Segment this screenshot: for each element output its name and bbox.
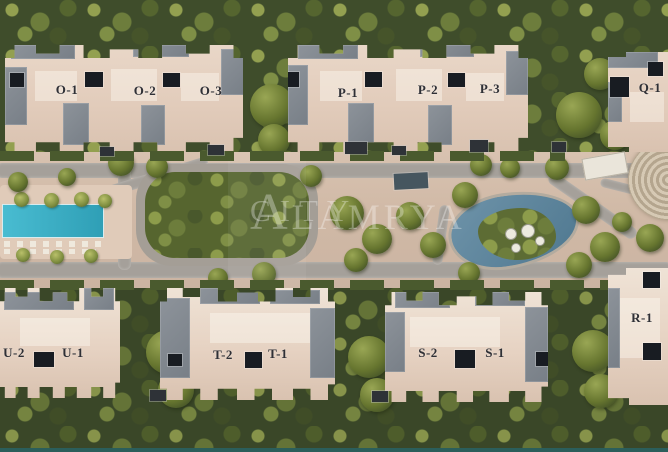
tree [572, 196, 600, 224]
cabana-umbrella [521, 224, 535, 238]
building-label-q1: Q-1 [639, 80, 661, 96]
building-cluster-s: S-2 S-1 [385, 292, 548, 402]
building-label-p3: P-3 [480, 81, 500, 97]
tree [8, 172, 28, 192]
tree [396, 202, 424, 230]
cabana-umbrella [511, 243, 521, 253]
tree [636, 224, 664, 252]
roof-highlight [210, 313, 310, 343]
building-cluster-t: T-2 T-1 [160, 288, 335, 400]
roof-section-gray [63, 103, 89, 145]
roof-section-gray [608, 288, 620, 368]
rooftop-skylight [643, 272, 660, 288]
building-label-t2: T-2 [213, 347, 233, 363]
rooftop-skylight [448, 73, 465, 87]
entrance-canopy [552, 142, 566, 152]
roof-highlight [410, 317, 500, 347]
building-label-u2: U-2 [3, 345, 25, 361]
tree [572, 330, 614, 372]
palm-tree [84, 249, 98, 263]
cabana-umbrella [505, 228, 517, 240]
roof-highlight [20, 318, 90, 346]
palm-tree [16, 248, 30, 262]
masterplan-aerial-view: O-1 O-2 O-3 P-1 P-2 P-3 Q-1 U-2 U [0, 0, 668, 452]
building-label-s2: S-2 [418, 345, 438, 361]
roof-section-gray [4, 292, 74, 310]
rooftop-skylight [643, 343, 661, 360]
cabana-umbrella [535, 236, 545, 246]
building-label-r1: R-1 [631, 310, 653, 326]
sun-loungers [4, 241, 104, 247]
bottom-edge-line [0, 448, 668, 452]
roof-section-gray [428, 105, 452, 145]
building-cluster-p: P-1 P-2 P-3 [288, 45, 528, 153]
swimming-pool [2, 204, 104, 238]
rooftop-skylight [365, 72, 382, 87]
tree [362, 224, 392, 254]
rooftop-skylight [85, 72, 103, 87]
image-seam [228, 152, 306, 290]
building-label-t1: T-1 [268, 346, 288, 362]
roof-section-gray [385, 312, 405, 372]
tree [452, 182, 478, 208]
tree [500, 158, 520, 178]
tree [420, 232, 446, 258]
tree [556, 92, 602, 138]
roof-section-gray [348, 103, 374, 145]
tree [344, 248, 368, 272]
building-cluster-o: O-1 O-2 O-3 [5, 45, 243, 153]
tree [566, 252, 592, 278]
tree [58, 168, 76, 186]
rooftop-skylight [34, 352, 54, 367]
roof-highlight [630, 92, 664, 122]
entrance-canopy [392, 146, 406, 155]
palm-tree [74, 192, 89, 207]
building-cluster-u: U-2 U-1 [0, 288, 120, 398]
roof-section-gray [160, 298, 190, 378]
rooftop-skylight [648, 62, 663, 76]
building-label-o3: O-3 [200, 83, 222, 99]
building-label-u1: U-1 [62, 345, 84, 361]
roof-section-gray [525, 307, 548, 382]
building-cluster-r: R-1 [608, 268, 668, 405]
entrance-canopy [372, 391, 388, 402]
building-label-p2: P-2 [418, 82, 438, 98]
entrance-canopy [208, 145, 224, 155]
pergola [394, 172, 429, 190]
rooftop-skylight [10, 73, 24, 87]
palm-tree [98, 194, 112, 208]
building-label-o2: O-2 [134, 83, 156, 99]
rooftop-skylight [536, 352, 548, 366]
rooftop-skylight [455, 350, 475, 368]
tree [250, 84, 294, 128]
rooftop-skylight [245, 352, 262, 368]
entrance-canopy [100, 147, 114, 156]
entrance-canopy [345, 142, 367, 154]
rooftop-skylight [610, 77, 629, 97]
tree [348, 336, 390, 378]
rooftop-skylight [288, 72, 299, 87]
building-label-s1: S-1 [485, 345, 505, 361]
rooftop-skylight [163, 73, 180, 87]
building-label-o1: O-1 [56, 82, 78, 98]
tree [612, 212, 632, 232]
hedge-row-bottom [0, 280, 610, 290]
roof-section-gray [141, 105, 165, 145]
building-cluster-q: Q-1 [608, 52, 668, 152]
palm-tree [50, 250, 64, 264]
building-label-p1: P-1 [338, 85, 358, 101]
rooftop-skylight [168, 354, 182, 366]
palm-tree [14, 192, 29, 207]
entrance-canopy [150, 390, 166, 401]
palm-tree [44, 193, 59, 208]
entrance-canopy [470, 140, 488, 152]
roof-section-gray [310, 308, 335, 378]
tree [590, 232, 620, 262]
hedge-row-top [0, 151, 565, 161]
tree [330, 196, 364, 230]
